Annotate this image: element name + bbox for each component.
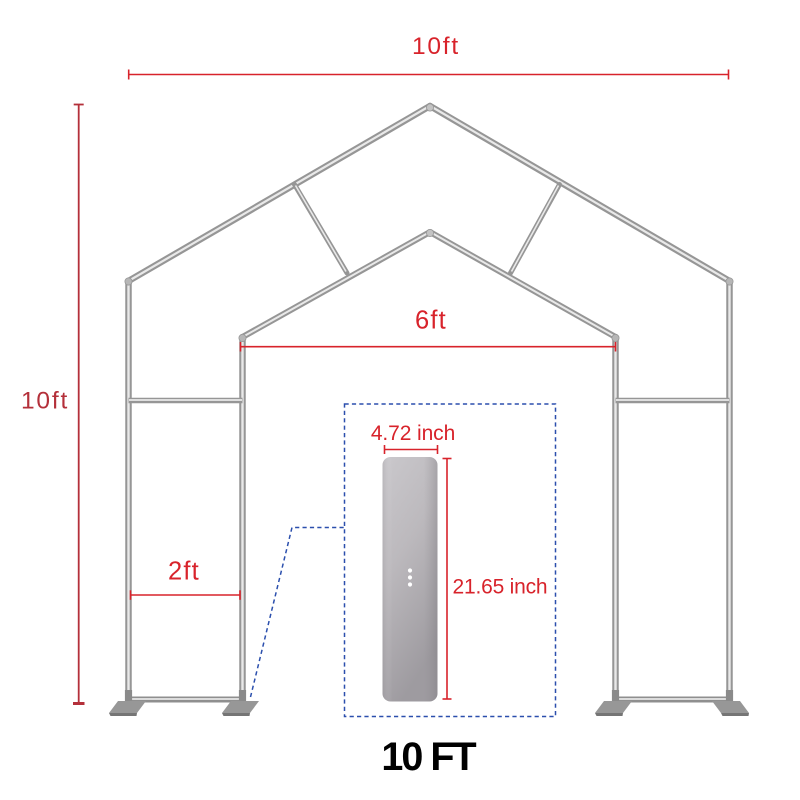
- svg-text:21.65 inch: 21.65 inch: [453, 576, 548, 599]
- svg-text:6ft: 6ft: [415, 307, 447, 335]
- svg-text:2ft: 2ft: [168, 558, 200, 586]
- svg-text:10ft: 10ft: [412, 33, 460, 60]
- svg-text:10ft: 10ft: [21, 388, 69, 415]
- svg-text:10 FT: 10 FT: [381, 735, 476, 779]
- svg-text:4.72 inch: 4.72 inch: [371, 422, 455, 445]
